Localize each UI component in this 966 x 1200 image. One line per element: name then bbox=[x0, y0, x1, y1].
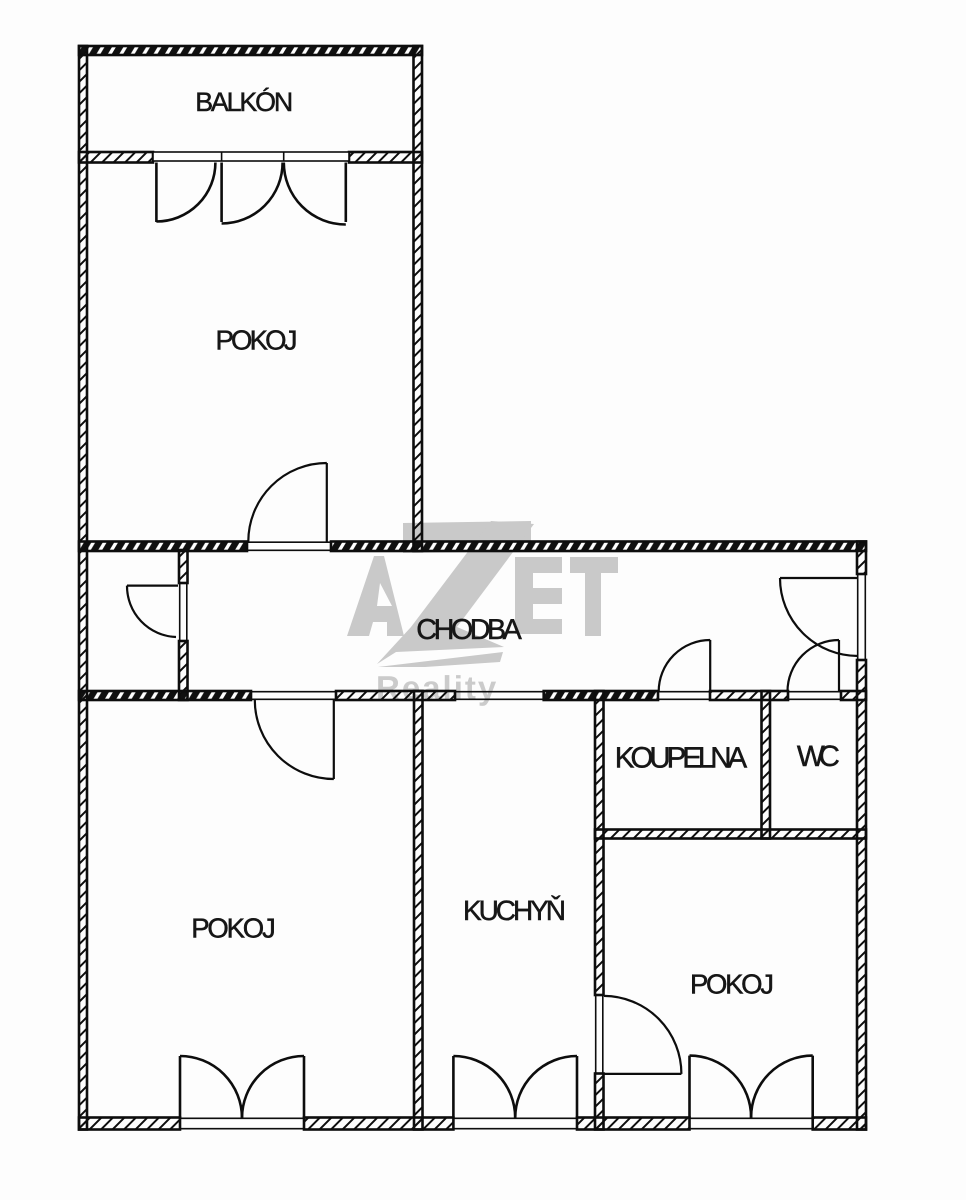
svg-text:POKOJ: POKOJ bbox=[216, 325, 298, 356]
svg-text:POKOJ: POKOJ bbox=[191, 913, 276, 944]
svg-text:KOUPELNA: KOUPELNA bbox=[615, 742, 748, 775]
svg-text:CHODBA: CHODBA bbox=[416, 614, 522, 646]
svg-text:BALKÓN: BALKÓN bbox=[195, 87, 293, 117]
svg-text:KUCHYŇ: KUCHYŇ bbox=[463, 895, 566, 926]
svg-text:WC: WC bbox=[797, 740, 840, 773]
svg-text:POKOJ: POKOJ bbox=[690, 969, 774, 1000]
